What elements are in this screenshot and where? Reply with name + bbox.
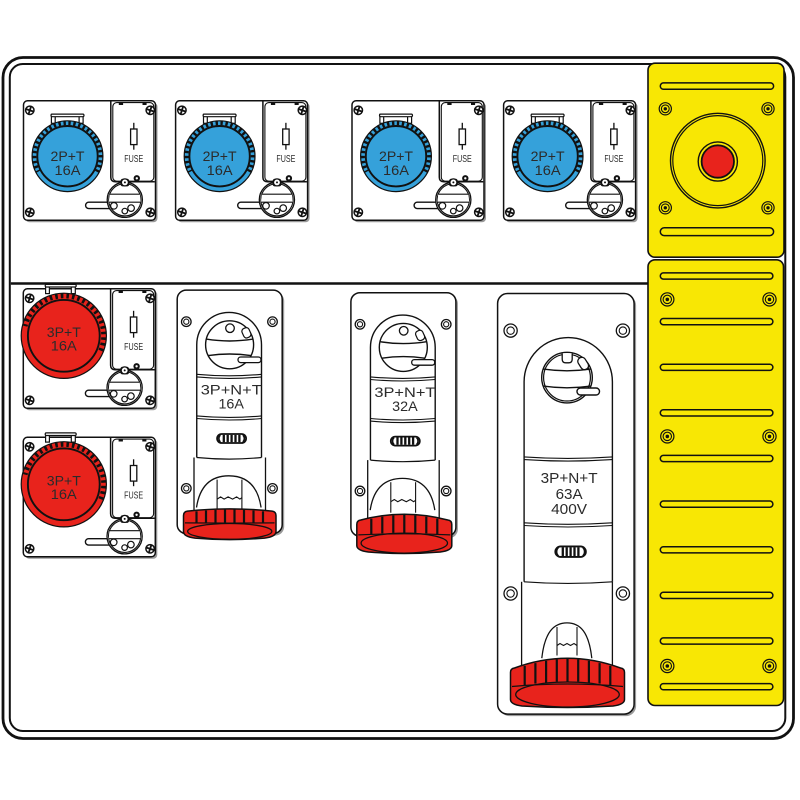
svg-text:16A: 16A (51, 486, 78, 502)
svg-text:16A: 16A (535, 162, 562, 178)
svg-text:FUSE: FUSE (124, 342, 143, 353)
svg-text:FUSE: FUSE (453, 154, 472, 165)
svg-text:FUSE: FUSE (124, 154, 143, 165)
svg-text:16A: 16A (218, 396, 244, 412)
svg-text:FUSE: FUSE (124, 491, 143, 502)
svg-text:16A: 16A (207, 162, 234, 178)
svg-text:FUSE: FUSE (604, 154, 623, 165)
svg-text:3P+N+T: 3P+N+T (541, 471, 598, 487)
svg-text:16A: 16A (383, 162, 410, 178)
svg-text:16A: 16A (51, 338, 78, 354)
svg-text:16A: 16A (55, 162, 82, 178)
svg-text:400V: 400V (551, 502, 587, 518)
svg-text:63A: 63A (556, 487, 583, 503)
svg-text:32A: 32A (392, 398, 418, 414)
svg-text:FUSE: FUSE (276, 154, 295, 165)
